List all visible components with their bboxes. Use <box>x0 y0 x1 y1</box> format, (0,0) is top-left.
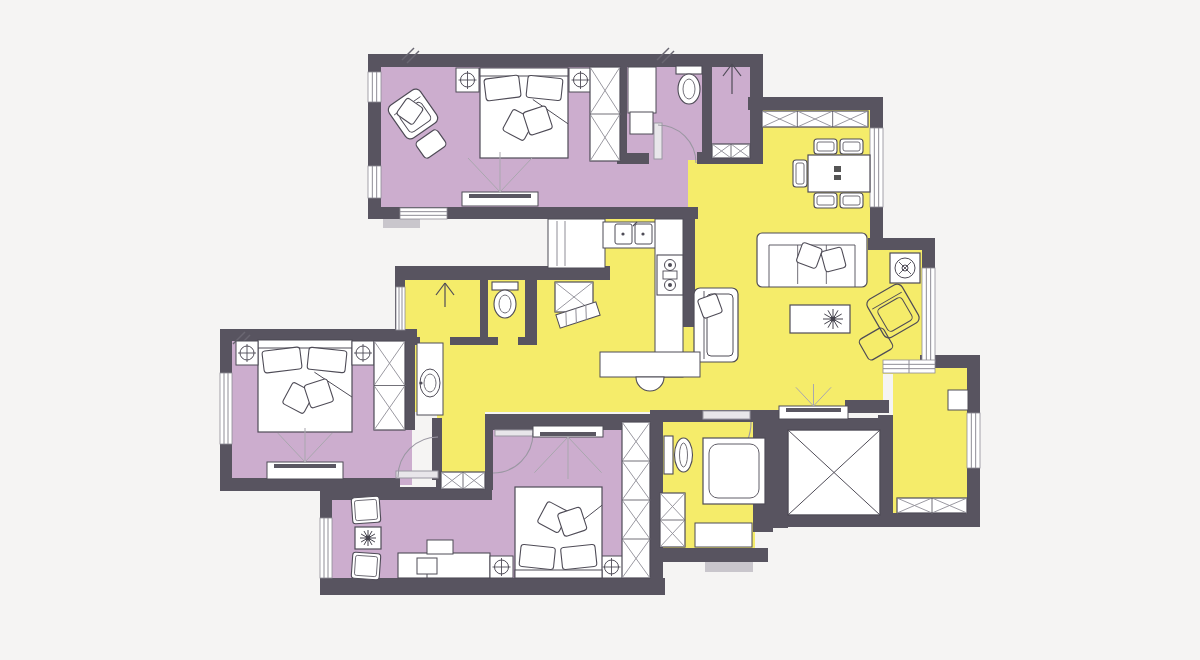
window <box>870 128 883 207</box>
door-leaf <box>396 471 438 478</box>
chair <box>814 139 837 154</box>
door-leaf <box>703 411 750 419</box>
sink-drain <box>621 232 624 235</box>
vanity-sink <box>417 343 443 415</box>
nightstand <box>236 341 258 365</box>
counter <box>600 352 700 377</box>
window <box>320 518 332 578</box>
wall-segment <box>617 153 649 164</box>
window-frame <box>220 373 232 444</box>
stove-top <box>657 255 683 295</box>
bed <box>480 68 568 158</box>
nightstand <box>352 341 374 365</box>
wardrobe-cabinet <box>441 472 485 489</box>
counter-top <box>630 112 653 134</box>
tv-screen <box>786 408 841 412</box>
counter <box>427 540 453 554</box>
pillow <box>519 544 556 569</box>
window <box>396 287 405 330</box>
washing-machine <box>890 253 920 283</box>
wall-segment <box>702 54 712 164</box>
chair <box>793 160 807 187</box>
threshold <box>383 219 420 228</box>
counter <box>948 390 968 410</box>
wardrobe-cabinet <box>622 422 650 578</box>
wardrobe-cabinet <box>590 67 620 161</box>
window <box>368 166 381 198</box>
shower-tray <box>703 438 765 504</box>
wardrobe-cabinet <box>374 341 405 430</box>
counter <box>695 523 752 547</box>
toilet <box>676 66 702 104</box>
sofa <box>757 233 867 287</box>
headboard <box>480 68 568 76</box>
window-frame <box>396 287 405 330</box>
window-frame <box>870 128 883 207</box>
elevator-shaft <box>788 430 880 515</box>
chair <box>351 496 381 524</box>
headboard <box>258 340 352 348</box>
chair <box>840 193 863 208</box>
table-glyph <box>834 166 841 172</box>
table <box>355 527 381 549</box>
chair-seat <box>354 499 377 520</box>
tv-screen <box>274 464 336 468</box>
wall-segment <box>773 418 788 528</box>
stove <box>657 255 683 295</box>
wardrobe-cabinet <box>762 111 868 127</box>
wall-segment <box>683 217 695 327</box>
nightstand <box>490 556 513 578</box>
window-frame <box>967 413 980 468</box>
window-frame <box>400 208 447 219</box>
wall-segment <box>320 578 665 595</box>
toilet-tank <box>676 66 702 74</box>
counter-top <box>628 67 656 113</box>
chair-seat <box>354 555 377 576</box>
nightstand <box>600 556 623 578</box>
chair-seat <box>843 142 860 151</box>
toilet-tank <box>664 436 673 474</box>
chair <box>351 552 381 580</box>
counter-top <box>948 390 968 410</box>
wall-segment <box>845 400 889 413</box>
toilet-tank <box>492 282 518 290</box>
window <box>220 373 232 444</box>
chair-seat <box>843 196 860 205</box>
window-frame <box>368 166 381 198</box>
wall-segment <box>773 515 893 527</box>
toilet-bowl <box>678 74 700 104</box>
window-frame <box>368 72 381 102</box>
chair-seat <box>817 142 834 151</box>
pillow <box>262 347 302 373</box>
wall-segment <box>650 410 703 422</box>
counter <box>630 112 653 134</box>
shower <box>703 438 765 504</box>
armchair <box>694 288 738 362</box>
wardrobe-cabinet <box>712 144 750 158</box>
floor-plan-svg <box>0 0 1200 660</box>
counter-top <box>600 352 700 377</box>
wall-segment <box>525 280 537 340</box>
wall-segment <box>650 548 768 562</box>
window-frame <box>320 518 332 578</box>
window <box>967 413 980 468</box>
tv-screen <box>469 194 531 198</box>
basin <box>420 369 440 397</box>
sliding-door <box>883 360 935 373</box>
toilet-bowl <box>494 290 516 318</box>
pillow <box>526 75 563 101</box>
pillow <box>821 247 847 273</box>
sink-drain <box>641 232 644 235</box>
floor-plan <box>0 0 1200 660</box>
window <box>368 72 381 102</box>
table-top <box>808 155 870 192</box>
nightstand <box>456 68 479 92</box>
wall-segment <box>450 337 498 345</box>
threshold <box>705 562 753 572</box>
plant-center <box>831 317 836 322</box>
pillow <box>560 544 597 569</box>
tv-screen <box>540 432 596 436</box>
coffee-table <box>790 305 850 333</box>
counter-top <box>695 523 752 547</box>
plant-center <box>366 536 371 541</box>
pillow <box>484 75 521 101</box>
burner-icon <box>668 263 672 267</box>
wall-segment <box>748 97 883 110</box>
tv-cabinet <box>779 406 848 419</box>
desk <box>398 553 490 578</box>
chair-seat <box>817 196 834 205</box>
chair-seat <box>796 163 804 184</box>
table <box>808 155 870 192</box>
wardrobe-cabinet <box>660 493 685 547</box>
counter-top <box>427 540 453 554</box>
window <box>922 268 935 362</box>
wardrobe-cabinet <box>897 498 967 513</box>
wall-segment <box>518 337 537 345</box>
door-leaf <box>495 430 533 436</box>
counter <box>628 67 656 113</box>
chair <box>840 139 863 154</box>
bed <box>515 487 602 578</box>
wall-segment <box>480 280 488 340</box>
chair <box>814 193 837 208</box>
headboard <box>515 570 602 578</box>
faucet-dot <box>419 381 422 384</box>
pillow <box>307 347 347 373</box>
wall-segment <box>773 418 893 430</box>
window <box>400 208 447 219</box>
wall-segment <box>878 513 980 527</box>
toilet <box>664 436 693 474</box>
counter <box>548 219 605 268</box>
nightstand <box>569 68 592 92</box>
monitor-icon <box>417 558 437 574</box>
door-leaf <box>654 123 662 159</box>
burner-icon <box>668 283 672 287</box>
bed <box>258 340 352 432</box>
toilet <box>492 282 518 318</box>
table-glyph <box>834 175 841 180</box>
desk-top <box>398 553 490 578</box>
window-frame <box>922 268 935 362</box>
